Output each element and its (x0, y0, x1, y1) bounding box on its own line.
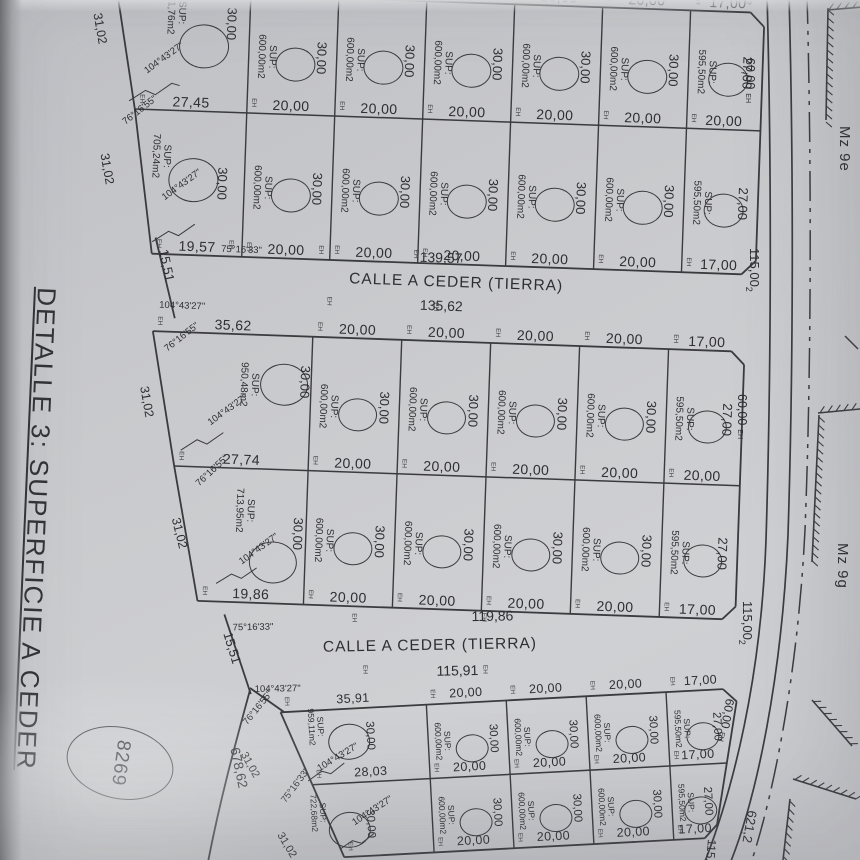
lot-side-dimension: 30,00 (460, 523, 477, 567)
lot-side-dimension: 27,00 (719, 397, 736, 441)
sup-word: SUP: (244, 480, 257, 540)
sup-area-value: 600,00m2 (606, 39, 619, 99)
sup-area-value: 713,95m2 (233, 480, 246, 540)
survey-marker: EH (317, 245, 324, 254)
lot-surface-label: SUP:600,00m2 (431, 32, 455, 93)
sup-area-value: 595,50m2 (671, 703, 683, 755)
survey-marker: EH (606, 0, 613, 2)
lot-surface-label: SUP:600,00m2 (312, 510, 336, 571)
lot-side-dimension: 30,00 (661, 179, 678, 223)
road-width-label: 115,002 (744, 248, 762, 292)
survey-marker: EH (694, 0, 701, 5)
survey-marker: EH (250, 98, 257, 107)
survey-marker: EH (311, 456, 318, 465)
block-depth-label: 60,00EH (743, 58, 757, 103)
sup-word: SUP: (505, 383, 518, 443)
street-total-north: 119,86 (447, 607, 537, 625)
cut-off-sup-label: 2 (743, 0, 753, 5)
lot-side-dimension: 30,00 (465, 389, 482, 433)
lot-surface-label: SUP:600,00m2 (405, 379, 429, 440)
survey-marker: EH (667, 468, 674, 477)
sup-area-value: 600,00m2 (602, 169, 615, 229)
survey-marker: EH (361, 665, 368, 674)
survey-marker: EH (350, 613, 357, 622)
lot-side-dimension: 30,00 (490, 790, 504, 835)
road-width-value: 115,00 (740, 601, 755, 640)
lot-surface-label: SUP:600,00m2 (316, 376, 340, 437)
survey-marker: EH (396, 593, 403, 602)
plan-drawing: EH20,00EH20,00EH20,00EH20,00EH20,00EH17,… (0, 0, 860, 860)
sup-area-value: 600,00m2 (494, 382, 507, 442)
dim-label: 20,00 (605, 108, 682, 127)
angle-label: 75°16'33" (233, 622, 274, 634)
lot-surface-label: SUP:600,00m2 (401, 513, 425, 574)
lot-side-dimension: 30,00 (554, 392, 571, 436)
dim-label: 20,00 (517, 105, 594, 124)
lot-surface-label: SUP:600,00m2 (426, 163, 450, 224)
sup-area-value: 600,00m2 (490, 516, 503, 576)
dim-label: 19,86 (213, 584, 290, 603)
lot-surface-label: SUP:600,00m2 (591, 706, 612, 759)
lot-side-dimension: 30,00 (577, 45, 594, 89)
dim-label: 20,00 (253, 96, 330, 115)
lot-side-dimension: 30,00 (401, 39, 418, 83)
lot-side-dimension: 30,00 (313, 36, 330, 80)
parcel-number: 8269 (106, 739, 134, 788)
lot-side-dimension: 30,00 (214, 161, 231, 205)
lot-side-dimension: 30,00 (489, 42, 506, 86)
sup-word: SUP: (589, 520, 602, 580)
sup-area-value: 600,00m2 (316, 376, 329, 436)
lot-side-dimension: 27,00 (714, 531, 731, 575)
plan-photo: EH20,00EH20,00EH20,00EH20,00EH20,00EH17,… (0, 0, 860, 860)
sup-area-value: 600,00m2 (578, 519, 591, 579)
sup-word: SUP: (594, 386, 607, 446)
survey-marker: EH (744, 93, 751, 103)
sup-area-value: 600,00m2 (515, 785, 527, 837)
cut-off-width-label: 115,0 (703, 839, 719, 860)
lot-side-dimension: 27,00 (735, 182, 752, 226)
lot-side-dimension: 30,00 (665, 48, 682, 92)
survey-marker: EH (602, 110, 609, 119)
dim-label: 20,00 (341, 99, 418, 118)
survey-marker: EH (307, 590, 314, 599)
street-total-south: 135,62 (396, 296, 487, 315)
sup-area-value: 595,50m2 (672, 388, 685, 448)
survey-marker: EH (177, 451, 184, 460)
angle-label: 104°43'27" (255, 683, 301, 695)
lot-side-dimension: 30,00 (371, 519, 388, 563)
sup-area-value: 722,68m2 (307, 787, 319, 839)
sup-area-value: 600,00m2 (343, 29, 356, 89)
lot-side-dimension: 30,00 (297, 360, 314, 404)
dim-label: 20,00 (429, 102, 506, 121)
sup-area-value: 600,00m2 (435, 789, 447, 841)
dim-label: 27,45 (153, 93, 230, 112)
sup-word: SUP: (501, 516, 514, 576)
survey-marker: EH (325, 296, 332, 305)
street-2: 75°16'33" 119,86 CALLE A CEDER (TIERRA) … (149, 598, 810, 696)
dim-label: 20,00 (310, 588, 387, 607)
sup-area-value: 600,00m2 (591, 707, 603, 759)
lot-surface-label: SUP:600,00m2 (250, 157, 274, 218)
sup-area-value: 600,00m2 (514, 166, 527, 226)
survey-marker: EH (227, 240, 234, 249)
sup-area-value: 600,00m2 (583, 385, 596, 445)
sup-area-value: 941,76m2 (164, 0, 177, 42)
lot-side-dimension: 30,00 (376, 385, 393, 429)
survey-marker: EH (426, 104, 433, 113)
lot-surface-label: SUP:600,00m2 (255, 26, 279, 87)
lot-surface-label: SUP:722,68m2 (307, 786, 328, 839)
lot-surface-label: SUP:600,00m2 (578, 519, 602, 580)
manzana-label-9e: Mz 9e (836, 126, 853, 172)
depth-value: 60,00 (743, 58, 757, 89)
sup-area-value: 595,50m2 (667, 522, 680, 582)
block-depth-label: 60,00EH (735, 394, 749, 439)
lot-side-dimension: 30,00 (485, 173, 502, 217)
sup-area-value: 600,00m2 (405, 379, 418, 439)
lot-side-dimension: 30,00 (638, 529, 655, 573)
lot-side-dimension: 27,00 (700, 779, 714, 824)
sup-area-value: 600,00m2 (312, 510, 325, 570)
survey-marker: EH (412, 249, 419, 258)
lot-side-dimension: 30,00 (309, 167, 326, 211)
survey-marker: EH (717, 731, 726, 742)
survey-marker: EH (432, 302, 439, 311)
lot-surface-label: SUP:600,00m2 (519, 35, 543, 96)
road-width-sup: 2 (737, 640, 747, 645)
manzana-label-9g: Mz 9g (834, 543, 851, 589)
street-total-north: 139,57 (396, 248, 487, 267)
sup-area-value: 595,50m2 (690, 172, 703, 232)
survey-marker: EH (480, 613, 487, 622)
lot-surface-label: SUP:600,00m2 (595, 780, 616, 833)
road-width-value: 115,00 (747, 248, 762, 287)
road-width-sup: 2 (744, 287, 754, 292)
lot-surface-label: SUP:713,95m2 (233, 480, 257, 541)
lot-surface-label: SUP:600,00m2 (602, 169, 626, 230)
survey-marker: EH (736, 429, 743, 439)
lot-surface-label: SUP:600,00m2 (515, 784, 536, 837)
lot-surface-label: SUP:600,00m2 (343, 29, 367, 90)
lot-side-dimension: 30,00 (549, 526, 566, 570)
sup-area-value: 600,00m2 (401, 513, 414, 573)
dim-label: 20,00 (493, 460, 570, 479)
survey-marker: EH (489, 462, 496, 471)
survey-marker: EH (338, 101, 345, 110)
lot-surface-label: SUP:600,00m2 (514, 166, 538, 227)
sup-area-value: 600,00m2 (255, 26, 268, 86)
survey-marker: EH (514, 107, 521, 116)
lot-side-dimension: 30,00 (646, 708, 660, 753)
lot-surface-label: SUP:600,00m2 (583, 385, 607, 446)
lot-side-dimension: 30,00 (570, 786, 584, 831)
survey-marker: EH (481, 665, 488, 674)
sup-area-value: 600,00m2 (338, 160, 351, 220)
sup-area-value: 600,00m2 (426, 163, 439, 223)
lot-surface-label: SUP:959,11m2 (305, 700, 326, 753)
sup-area-value: 600,00m2 (431, 32, 444, 92)
lot-surface-label: SUP:600,00m2 (494, 382, 518, 443)
sup-area-value: 705,24m2 (149, 126, 162, 186)
sup-area-value: 600,00m2 (595, 781, 607, 833)
survey-marker: EH (283, 697, 290, 706)
sup-area-value: 959,11m2 (305, 701, 317, 753)
sup-area-value: 595,50m2 (694, 42, 707, 102)
lot-side-dimension: 30,00 (397, 170, 414, 214)
lot-side-dimension: 30,00 (224, 2, 241, 46)
lot-surface-label: SUP:600,00m2 (511, 711, 532, 764)
dim-label: 20,00 (581, 463, 658, 482)
lot-surface-label: SUP:600,00m2 (432, 715, 453, 768)
lot-side-dimension: 30,00 (573, 176, 590, 220)
lot-surface-label: SUP:600,00m2 (606, 39, 630, 100)
street-total-south: 115,91 (412, 662, 502, 680)
sup-word: SUP: (323, 510, 336, 570)
sup-word: SUP: (412, 513, 425, 573)
sup-word: SUP: (416, 379, 429, 439)
survey-marker: EH (578, 465, 585, 474)
lot-side-dimension: 30,00 (290, 512, 307, 556)
survey-marker: EH (400, 459, 407, 468)
lot-surface-label: SUP:600,00m2 (435, 789, 456, 842)
lot-side-dimension: 30,00 (363, 713, 377, 758)
depth-value: 60,00 (735, 394, 749, 425)
angle-label: 104°43'27" (159, 300, 205, 313)
dim-label: 20,00 (404, 457, 481, 476)
sup-area-value: 600,00m2 (511, 711, 523, 763)
road-width-label: 115,002 (737, 601, 755, 645)
sup-area-value: 600,00m2 (250, 157, 263, 217)
sup-word: SUP: (327, 376, 340, 436)
sup-area-value: 600,00m2 (519, 35, 532, 95)
dim-label: 20,00 (315, 454, 392, 473)
sup-area-value: 600,00m2 (432, 715, 444, 767)
lot-block-2: 35,62EH20,00EH20,00EH20,00EH20,00EH17,00… (123, 314, 801, 637)
lot-side-dimension: 30,00 (643, 395, 660, 439)
lot-surface-label: SUP:600,00m2 (490, 516, 514, 577)
survey-marker: EH (690, 113, 697, 122)
lot-surface-label: SUP:600,00m2 (338, 160, 362, 221)
lot-side-dimension: 30,00 (486, 716, 500, 761)
lot-side-dimension: 30,00 (650, 781, 664, 826)
lot-side-dimension: 30,00 (566, 712, 580, 757)
survey-marker: EH (201, 586, 208, 595)
dim-label: 20,00 (664, 466, 741, 485)
